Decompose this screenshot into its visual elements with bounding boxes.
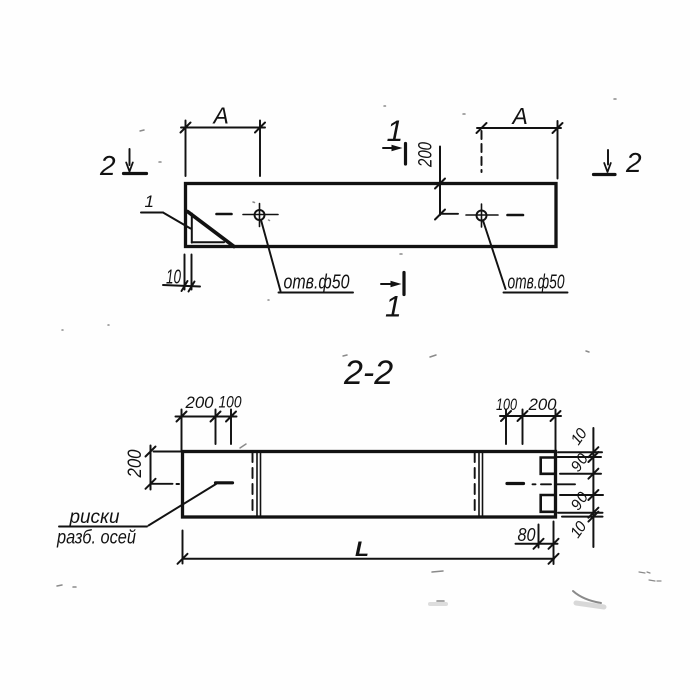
svg-text:2: 2 (625, 147, 642, 178)
svg-text:1: 1 (385, 291, 402, 324)
svg-text:80: 80 (518, 525, 536, 545)
svg-text:90: 90 (568, 489, 592, 514)
svg-text:100: 100 (219, 393, 242, 412)
svg-text:A: A (511, 103, 528, 129)
svg-text:2-2: 2-2 (343, 354, 393, 392)
svg-text:разб. осей: разб. осей (56, 528, 136, 549)
svg-text:отв.ф50: отв.ф50 (508, 272, 565, 294)
svg-text:10: 10 (567, 518, 590, 541)
svg-text:отв.ф50: отв.ф50 (284, 272, 350, 294)
svg-text:200: 200 (185, 393, 215, 412)
svg-text:1: 1 (387, 115, 404, 148)
svg-text:10: 10 (568, 425, 591, 448)
svg-text:200: 200 (125, 449, 146, 478)
svg-text:риски: риски (69, 507, 120, 528)
svg-text:2: 2 (99, 150, 116, 181)
svg-text:1: 1 (145, 192, 154, 211)
svg-text:200: 200 (416, 142, 437, 168)
svg-text:A: A (212, 103, 229, 129)
svg-text:200: 200 (528, 395, 558, 414)
svg-text:100: 100 (496, 395, 517, 414)
svg-text:L: L (355, 538, 369, 561)
svg-text:10: 10 (166, 267, 181, 289)
svg-text:90: 90 (568, 450, 592, 475)
